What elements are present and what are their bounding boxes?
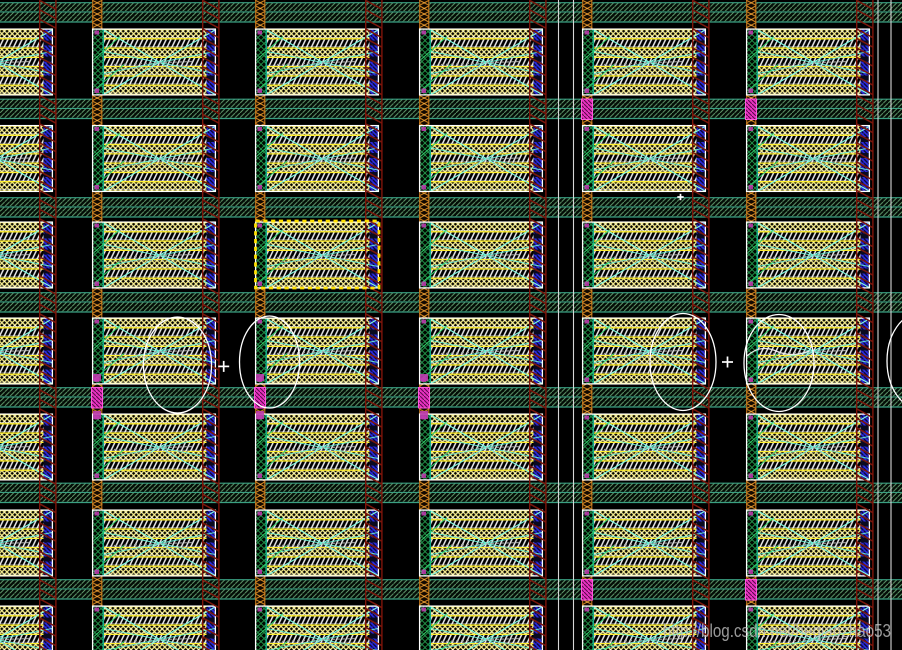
svg-text:http://blog.csdn.net/heqiaozha: http://blog.csdn.net/heqiaozhao53 [663, 620, 891, 641]
